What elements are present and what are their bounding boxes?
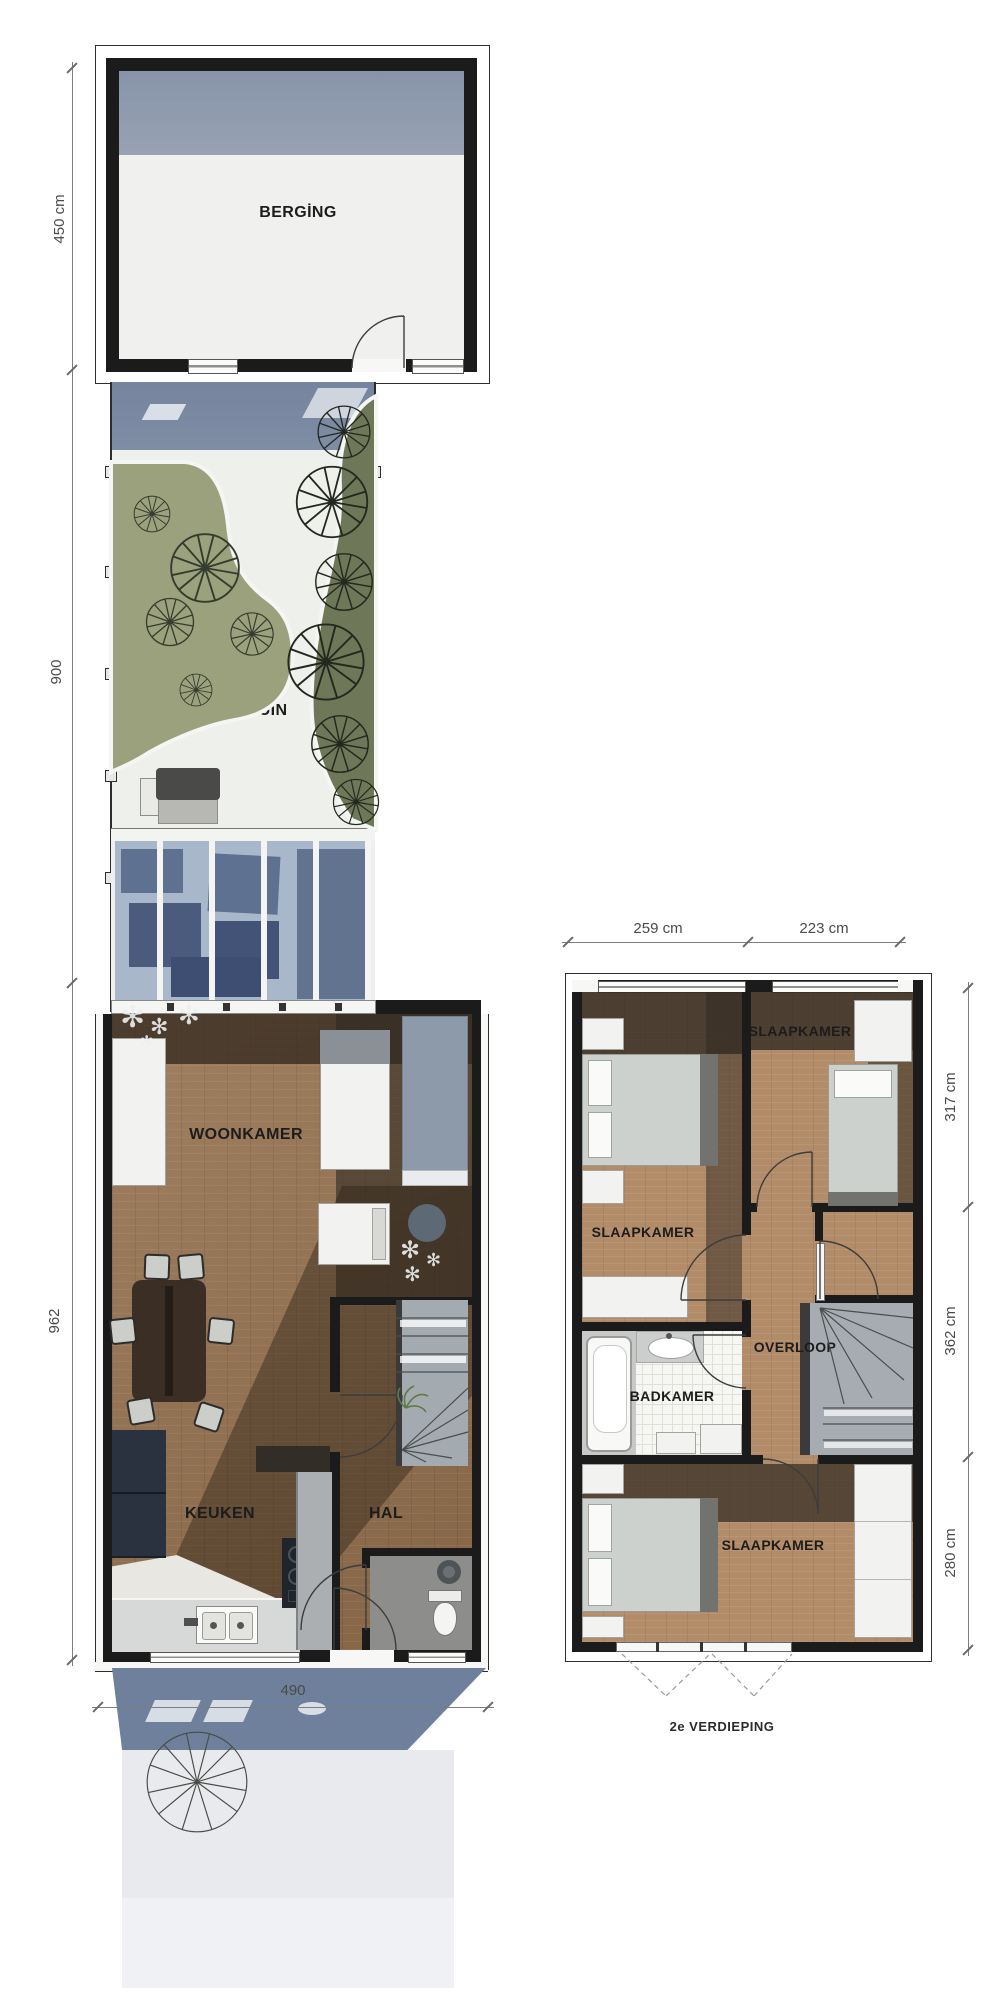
floor-caption: 2e VERDIEPING [622,1718,822,1736]
floorplan-canvas: 450 cm 900 962 BERGİNG TUİN [0,0,1000,2000]
fence-post [105,668,117,680]
conservatory-beam [111,828,375,842]
wall-toilet-top [370,1548,472,1556]
second-corner-jamb [898,980,913,992]
barbecue-lid [156,768,220,800]
dim-bottom-depth: 280 cm [942,1503,960,1603]
pillow [588,1112,612,1158]
wall-closet-horiz [815,1295,913,1303]
kitchen-sink [196,1606,258,1644]
room-label-badkamer: BADKAMER [592,1387,752,1405]
wall-toilet-left-b [362,1628,370,1650]
living-top-right-wall [376,1000,481,1014]
wall-toilet-left-a [362,1548,370,1568]
floor-flower-decor: ✻ [400,1236,420,1265]
room-label-slaapkamer-bottom: SLAAPKAMER [683,1536,863,1554]
sideboard [112,1038,166,1186]
room-label-overloop: OVERLOOP [715,1338,875,1356]
toilet-window [408,1652,466,1663]
bed-tl-foot [700,1054,718,1166]
room-label-slaapkamer-left: SLAAPKAMER [553,1223,733,1241]
wall-tr-overloop-a [751,1203,757,1212]
dining-chair [109,1317,138,1346]
staircase-second [810,1303,913,1455]
dim-width-490: 490 [243,1682,343,1700]
wall-closet-vert [815,1211,823,1241]
pillow [834,1070,892,1098]
second-wall-left [572,980,582,1652]
washbasin [648,1337,694,1359]
bath-storage [656,1432,696,1454]
stair-tread-highlight [824,1442,912,1448]
window-mullion [656,1642,659,1652]
wc-cistern [428,1590,462,1602]
living-wall-right [472,1014,481,1662]
kitchen-overhead-cabinet [256,1446,330,1472]
kitchen-island-counter [296,1472,332,1650]
floor-flower-decor: ✻ [404,1262,421,1287]
room-label-woonkamer: WOONKAMER [156,1126,336,1144]
dim-line-top-second [562,942,906,943]
pillow [588,1060,612,1106]
sofa [402,1016,468,1172]
room-label-keuken: KEUKEN [150,1505,290,1523]
dim-tuin-depth: 900 [48,622,66,722]
nightstand [582,1018,624,1050]
dresser [582,1276,688,1318]
fence-post [105,770,117,782]
room-label-tuin: TUİN [208,702,328,720]
nightstand [582,1464,624,1494]
berging-window-2 [412,359,464,374]
nightstand [582,1170,624,1204]
dim-berging-depth: 450 cm [51,169,69,269]
wall-flower-decor: ✻ [178,1000,200,1031]
dim-line-left [72,62,73,1666]
washbasin-tap [666,1333,672,1339]
front-glint-oval [298,1702,326,1715]
stair-tread-highlight [400,1320,466,1327]
wall-bottom-bedroom-b [818,1455,913,1464]
armchair-back [372,1208,386,1260]
chaise-back [320,1030,390,1064]
front-glint [145,1700,201,1722]
fence-post [105,466,117,478]
driveway-lower [122,1898,454,1988]
wall-flower-decor: ✻ [120,1000,145,1035]
wall-bottom-bedroom-a [582,1455,763,1464]
toilet-basin [437,1560,461,1584]
second-bottom-window [616,1642,792,1652]
pillow [588,1558,612,1606]
dim-line-right-second [968,982,969,1656]
facade-mullion [223,1003,230,1011]
berging-window-1 [188,359,238,374]
d im-top-depth: 317 cm [942,1047,960,1147]
fence-post [105,566,117,578]
stair-tread-highlight [400,1356,466,1363]
wall-woonkamer-hal-a [330,1297,340,1392]
bed-bottom-foot [700,1498,718,1612]
dining-chair [144,1254,171,1281]
driveway [122,1750,454,1898]
window-mullion [744,1642,747,1652]
bed-tr-foot [828,1192,898,1206]
closet-door-leaf [816,1243,825,1301]
wall-flower-decor: ✻ [140,1032,153,1052]
pillow [588,1504,612,1552]
stairwell-dark-band [800,1303,810,1455]
barbecue-body [158,798,218,824]
floor-flower-decor: ✻ [426,1250,441,1271]
window-mullion [700,1642,703,1652]
room-label-slaapkamer-right: SLAAPKAMER [710,1022,890,1040]
nightstand [582,1616,624,1638]
dim-width-left: 259 cm [593,920,723,938]
dim-living-depth: 962 [46,1271,64,1371]
room-label-berging: BERGİNG [218,204,378,222]
wc-bowl [433,1602,457,1636]
dining-chair [126,1396,156,1426]
sofa-armrest [402,1170,468,1186]
kitchen-window [150,1652,300,1663]
wall-bedrooms-vert-b [742,1300,751,1337]
dim-line-bottom [92,1707,494,1708]
second-corner-jamb [572,980,598,992]
kitchen-cabinets [112,1430,166,1558]
living-outer-band-right [481,1014,489,1670]
room-label-hal: HAL [336,1505,436,1523]
front-door-gap [330,1650,394,1662]
berging-door-gap [352,359,406,372]
facade-mullion [279,1003,286,1011]
dim-width-right: 223 cm [759,920,889,938]
facade-mullion [335,1003,342,1011]
wall-badkamer-top [582,1322,751,1331]
facade-mullion [167,1003,174,1011]
fence-post [369,466,381,478]
dim-middle-depth: 362 cm [942,1281,960,1381]
kitchen-faucet [184,1618,198,1626]
second-wall-right [913,980,923,1652]
dining-chair [177,1253,205,1281]
kitchen-cabinet-divider [112,1492,166,1494]
conservatory-glass-roof [111,841,375,1000]
berging-shadow [119,71,464,155]
dining-table-spine [165,1286,173,1396]
dining-chair [207,1317,236,1346]
garden-fence-right [374,382,376,832]
stair-tread-highlight [824,1410,912,1416]
bath-storage [700,1424,742,1454]
